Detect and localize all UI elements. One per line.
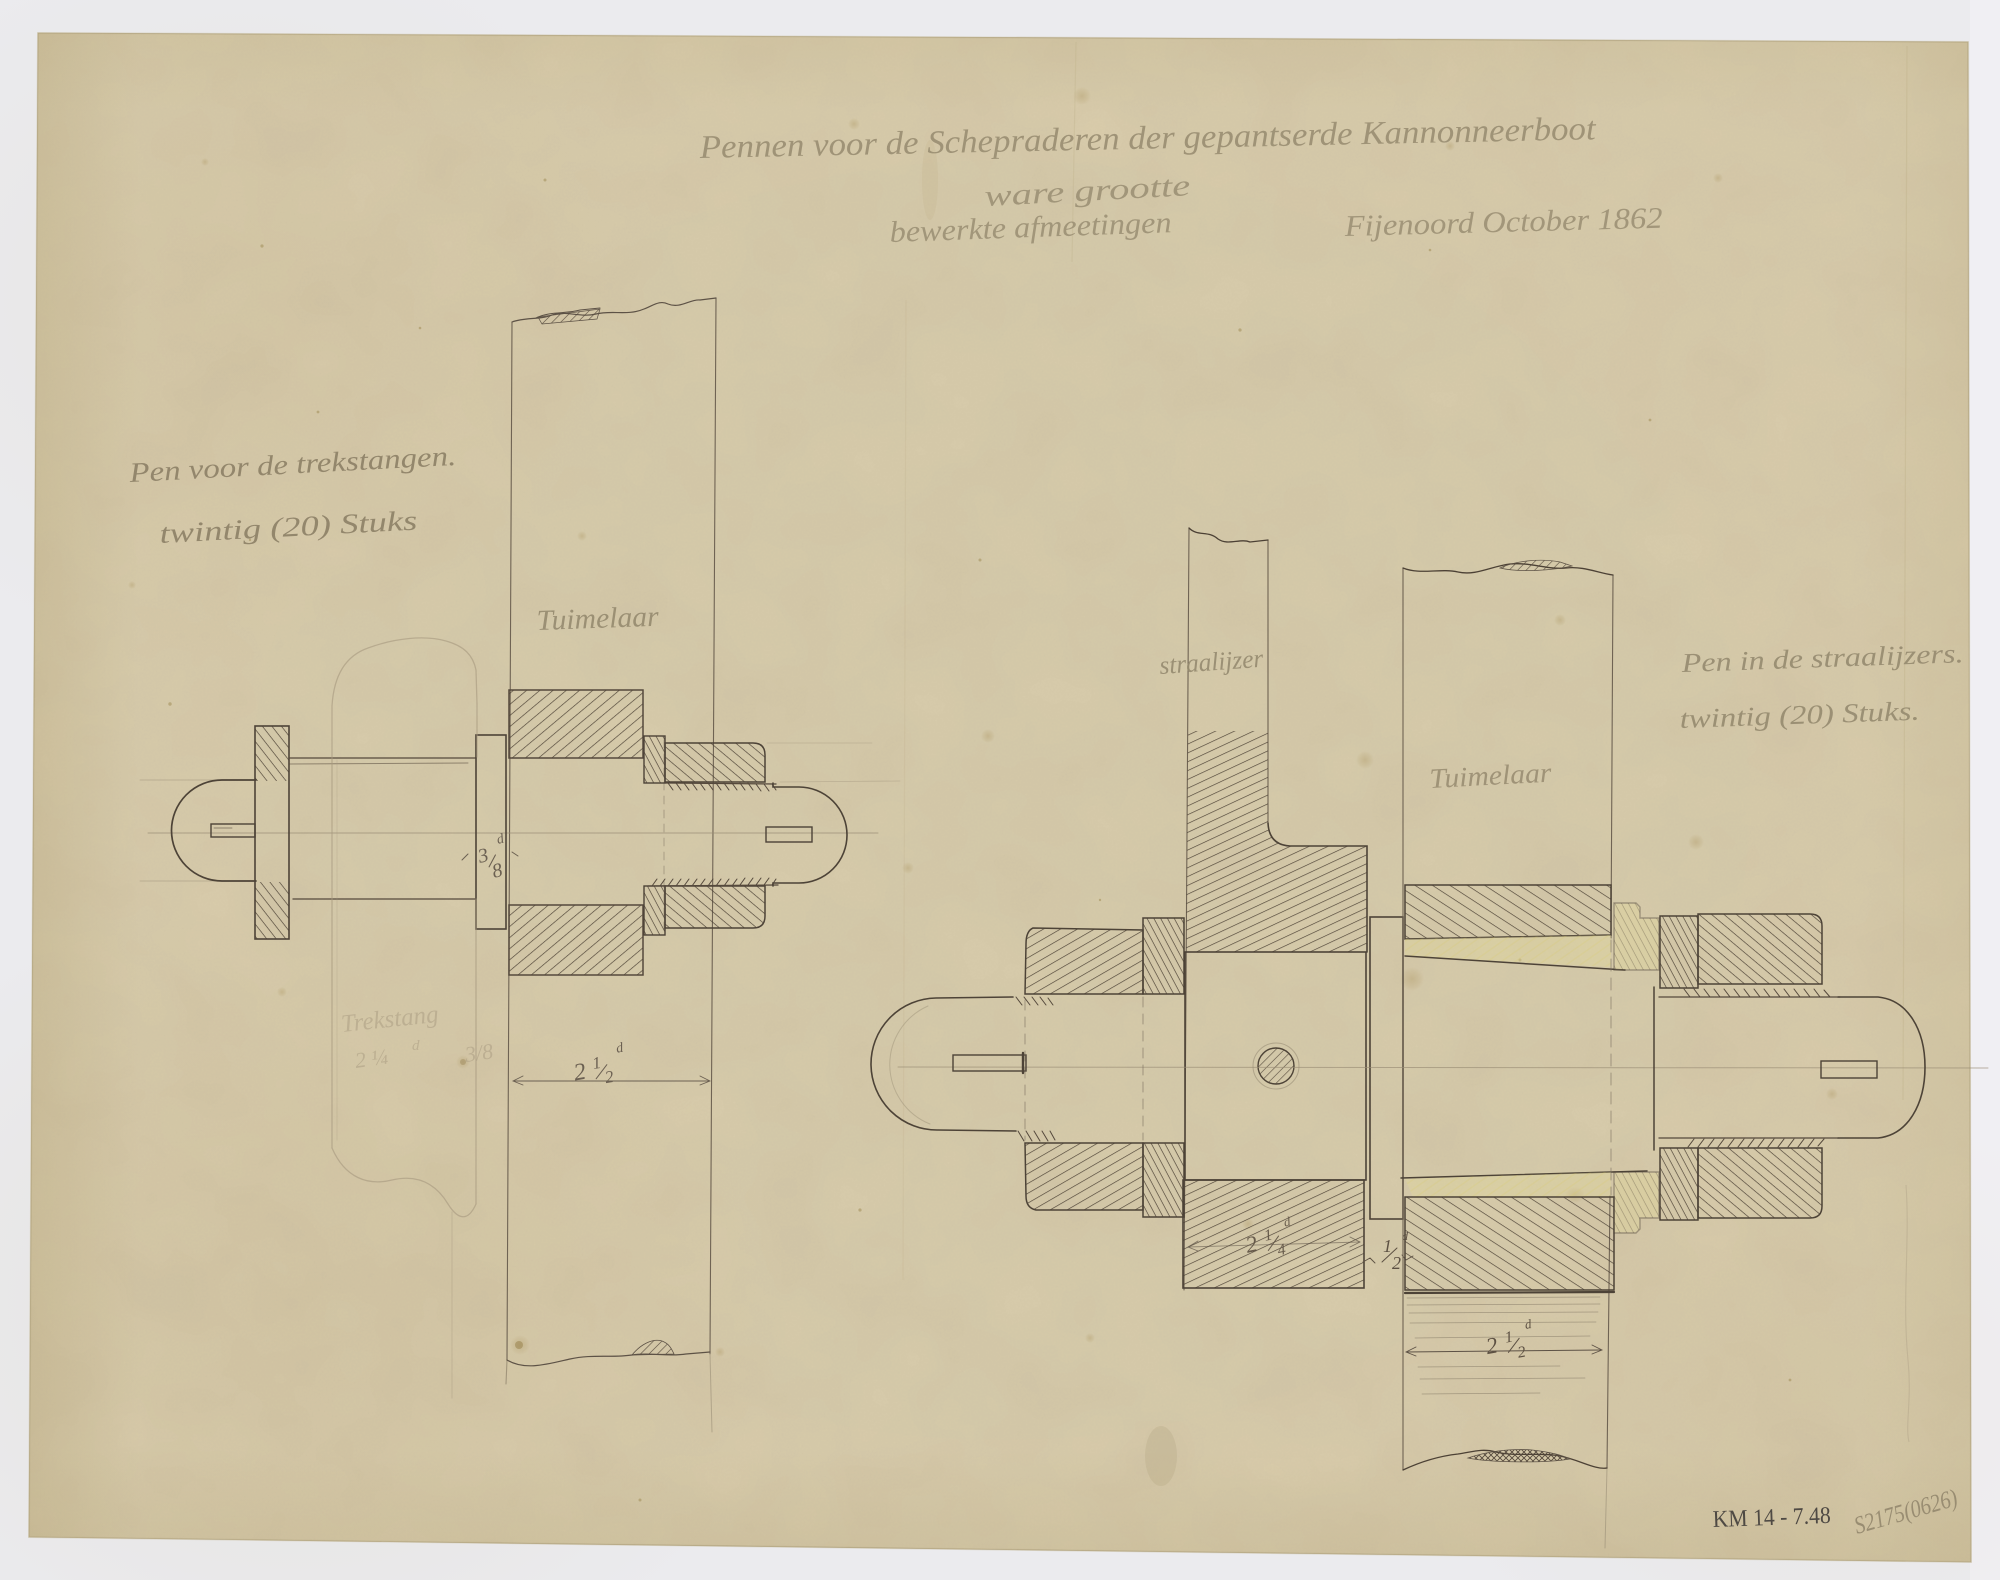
svg-text:KM 14 - 7.48: KM 14 - 7.48: [1712, 1503, 1831, 1533]
svg-text:d: d: [412, 1038, 420, 1054]
svg-text:1: 1: [1383, 1236, 1392, 1256]
svg-text:Tuimelaar: Tuimelaar: [536, 601, 660, 637]
svg-text:2 ¼: 2 ¼: [353, 1044, 389, 1073]
svg-text:2: 2: [1392, 1253, 1401, 1273]
svg-text:Tuimelaar: Tuimelaar: [1429, 758, 1553, 795]
svg-text:3/8: 3/8: [462, 1038, 494, 1067]
